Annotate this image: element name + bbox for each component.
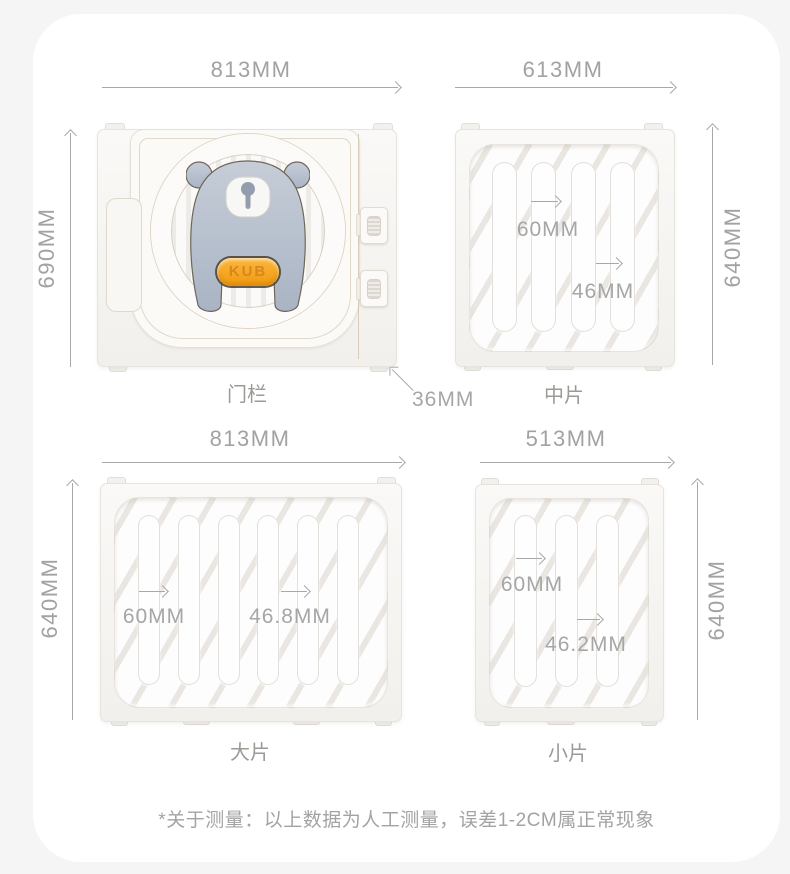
panel-slot [257,515,279,685]
bar-width-arrow-icon [577,619,600,620]
measurement-footnote: *关于测量：以上数据为人工测量，误差1-2CM属正常现象 [33,805,780,832]
door-height-label: 690MM [36,168,58,328]
large-bar-width-label: 46.8MM [235,606,345,628]
middle-bar-width-label: 46MM [548,281,658,303]
door-width-label: 813MM [171,59,331,81]
large-height-arrow-icon [72,483,73,720]
middle-width-label: 613MM [483,59,643,81]
latch-grip [367,216,381,236]
panel-slot [555,515,578,687]
door-height-arrow-icon [70,133,71,367]
panel-slot [531,162,556,332]
bar-width-arrow-icon [596,263,619,264]
middle-height-label: 640MM [722,167,744,327]
panel-slot [178,515,200,685]
bar-width-arrow-icon [281,591,307,592]
panel-slot [571,162,596,332]
small-width-arrow-icon [480,462,671,463]
panel-slot [297,515,319,685]
small-width-label: 513MM [486,428,646,450]
slot-width-arrow-icon [516,558,542,559]
door-panel-name: 门栏 [167,378,327,407]
large-slot-width-label: 60MM [99,606,209,628]
panel-slot [218,515,240,685]
slot-width-arrow-icon [531,201,558,202]
door-latch [360,207,388,244]
door-hinge-inset [106,198,142,312]
panel-slot [610,162,635,332]
bear-nose-stem [246,193,251,209]
door-width-arrow-icon [102,87,398,88]
panel-slot [337,515,359,685]
small-panel-name: 小片 [488,737,648,766]
latch-grip [367,279,381,299]
small-height-arrow-icon [697,482,698,720]
middle-panel-name: 中片 [484,379,644,408]
panel-slot [492,162,517,332]
product-dimension-diagram: 813MM 690MM KUB 门栏 36MM 613MM 640MM [0,0,790,874]
small-slot-width-label: 60MM [477,574,587,596]
middle-width-arrow-icon [455,87,673,88]
door-latch [360,270,388,307]
large-height-label: 640MM [39,518,61,678]
panel-slot [514,515,537,687]
kub-logo-badge: KUB [217,258,279,286]
panel-slot [596,515,619,687]
small-height-label: 640MM [706,520,728,680]
middle-slot-width-label: 60MM [493,219,603,241]
panel-slot [138,515,160,685]
bear-icon [186,155,310,317]
middle-height-arrow-icon [712,127,713,365]
large-panel-name: 大片 [170,736,330,765]
small-bar-width-label: 46.2MM [531,634,641,656]
large-width-arrow-icon [102,462,402,463]
door-seam [358,134,359,359]
slot-width-arrow-icon [139,591,165,592]
large-width-label: 813MM [170,428,330,450]
